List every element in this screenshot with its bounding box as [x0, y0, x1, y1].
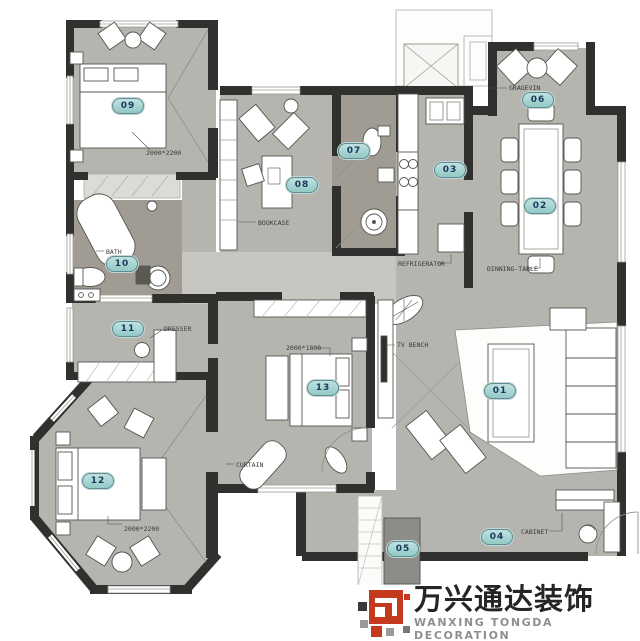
logo-english-text: WANXING TONGDA DECORATION [414, 616, 640, 641]
chair-icon [501, 202, 518, 226]
bench-icon [142, 458, 166, 510]
annotation-label: GRAGEVIN [509, 84, 540, 92]
annotation-label: BOOKCASE [258, 219, 289, 227]
logo-chinese-text: 万兴通达装饰 [414, 584, 640, 614]
elevator-lobby [396, 10, 492, 88]
company-logo: 万兴通达装饰 WANXING TONGDA DECORATION [356, 585, 640, 641]
sofa-icon [566, 328, 616, 468]
dresser-counter-icon [154, 330, 176, 382]
chair-icon [564, 138, 581, 162]
annotation-label: TV BENCH [397, 341, 428, 349]
annotation-label: DINNING-TABLE [487, 265, 538, 273]
chair-icon [564, 202, 581, 226]
chair-icon [501, 170, 518, 194]
room-pill-02: 02 [524, 198, 556, 214]
shower-icon [147, 201, 157, 211]
chair-icon [564, 170, 581, 194]
side-table-icon [284, 99, 298, 113]
tv-icon [381, 336, 387, 382]
annotation-label: 2000*1800 [286, 344, 321, 352]
room-pill-08: 08 [286, 177, 318, 193]
room-pill-03: 03 [434, 162, 466, 178]
dining-table-icon [519, 124, 563, 254]
room-pill-13: 13 [307, 380, 339, 396]
room-pill-11: 11 [112, 321, 144, 337]
room-pill-06: 06 [522, 92, 554, 108]
room-pill-05: 05 [387, 541, 419, 557]
room-pill-01: 01 [484, 383, 516, 399]
annotation-label: 2000*2200 [146, 149, 181, 157]
side-table-icon [112, 552, 132, 572]
chair-icon [501, 138, 518, 162]
stairs-icon [358, 496, 382, 586]
cabinet-block [136, 266, 150, 284]
dresser-icon [266, 356, 288, 420]
refrigerator-icon [438, 224, 464, 252]
annotation-label: BATH [106, 248, 122, 256]
sink-icon [378, 168, 394, 182]
annotation-label: DRESSER [164, 325, 191, 333]
bookcase-icon [220, 100, 237, 250]
annotation-label: REFRIGERATOR [398, 260, 445, 268]
room-pill-10: 10 [106, 256, 138, 272]
logo-mark-icon [356, 586, 410, 640]
annotation-label: 2000*2200 [124, 525, 159, 533]
side-table-icon [125, 32, 141, 48]
room-pill-04: 04 [481, 529, 513, 545]
desk-icon [604, 502, 620, 552]
wardrobe-icon [254, 300, 366, 317]
side-table-icon [550, 308, 586, 330]
room-pill-09: 09 [112, 98, 144, 114]
floor-corridor-left [182, 176, 216, 256]
side-table-icon [527, 58, 547, 78]
annotation-label: CURTAIN [236, 461, 263, 469]
room-pill-07: 07 [338, 143, 370, 159]
stool-icon [135, 343, 150, 358]
annotation-label: CABINET [521, 528, 548, 536]
floorplan-image: 010203040506070809101112132000*2200BOOKC… [0, 0, 640, 641]
room-pill-12: 12 [82, 473, 114, 489]
